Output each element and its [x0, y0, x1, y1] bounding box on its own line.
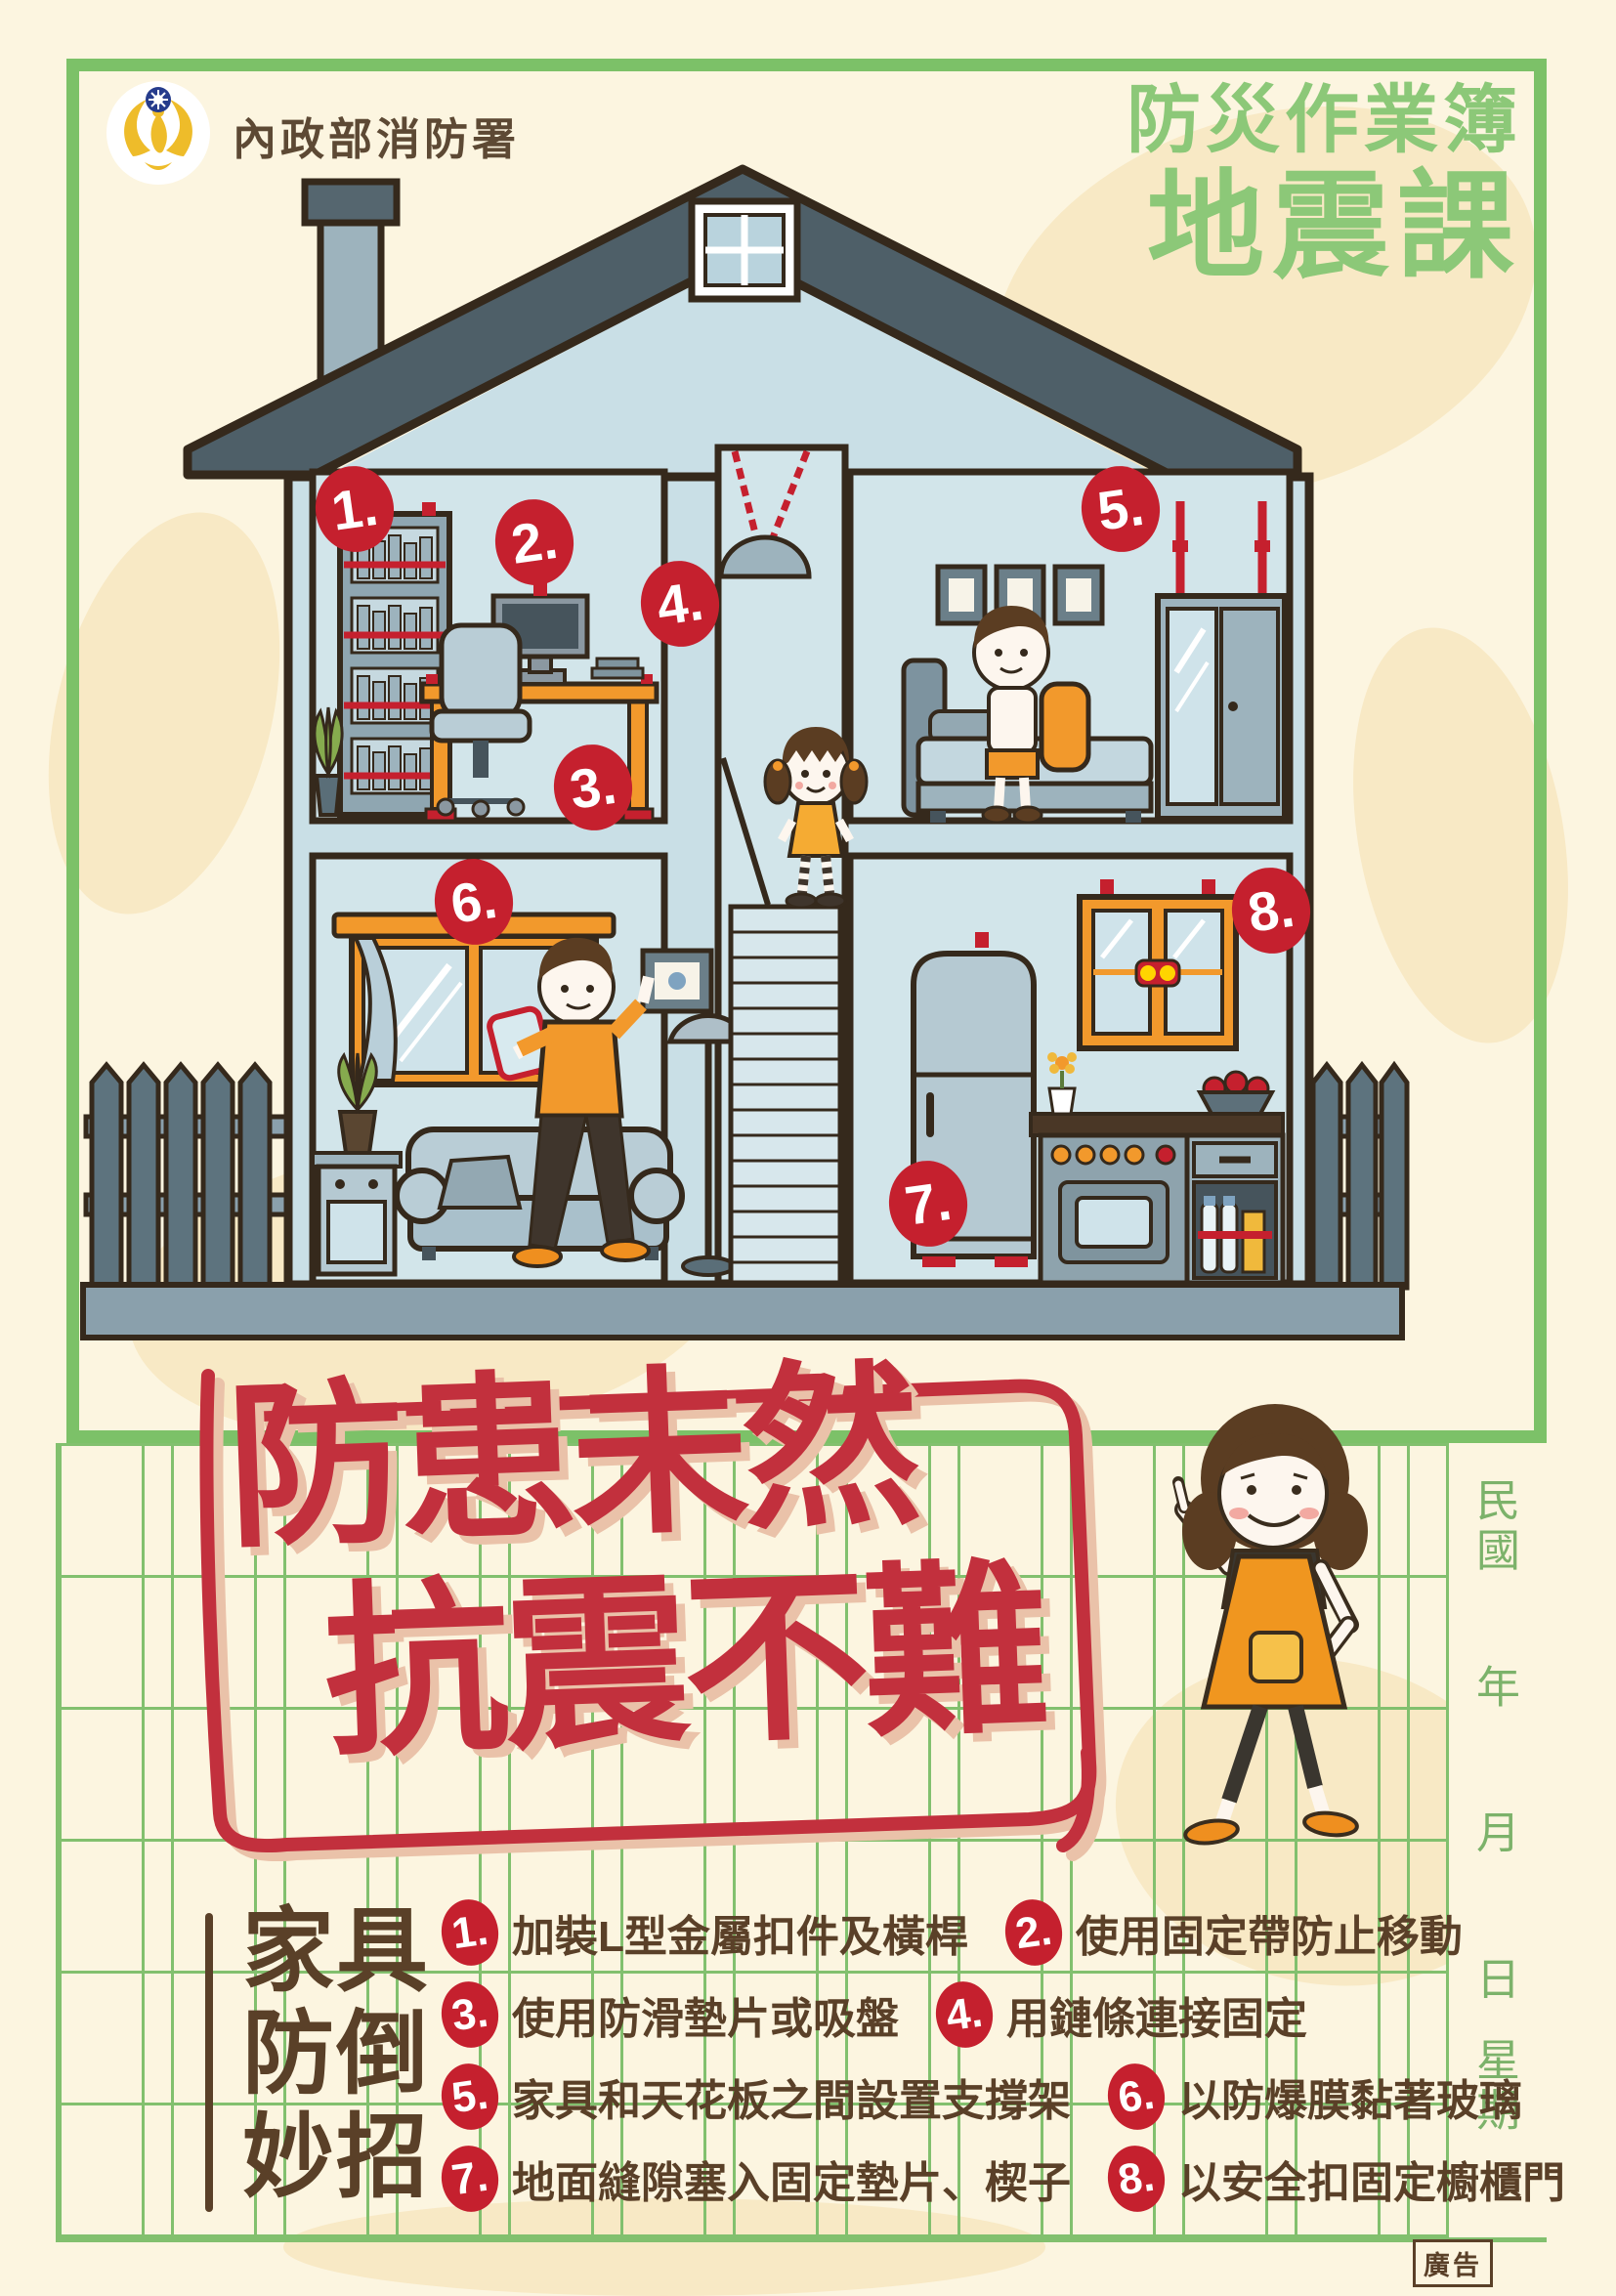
attic-window — [692, 201, 797, 299]
tip-row: 3. 使用防滑墊片或吸盤 4. 用鏈條連接固定 — [442, 1981, 1565, 2048]
tip-number-badge: 8. — [1104, 2142, 1169, 2215]
tip-item-8: 8. 以安全扣固定櫥櫃門 — [1108, 2146, 1565, 2212]
woman-character — [1114, 1392, 1378, 1847]
tip-text: 使用固定帶防止移動 — [1076, 1901, 1463, 1964]
tip-number-badge: 2. — [1000, 1895, 1066, 1969]
svg-text:6.: 6. — [447, 868, 500, 935]
tip-number-badge: 4. — [932, 1977, 998, 2051]
tip-item-5: 5. 家具和天花板之間設置支撐架 — [442, 2063, 1071, 2130]
tip-text: 使用防滑墊片或吸盤 — [512, 1983, 899, 2046]
svg-text:2.: 2. — [507, 508, 561, 575]
tip-row: 7. 地面縫隙塞入固定墊片、楔子 8. 以安全扣固定櫥櫃門 — [442, 2146, 1565, 2212]
tip-text: 以防爆膜黏著玻璃 — [1178, 2065, 1522, 2128]
tips-heading-line: 家具 — [242, 1899, 430, 2002]
tip-text: 加裝L型金屬扣件及橫桿 — [512, 1901, 968, 1964]
tips-heading-line: 妙招 — [242, 2105, 430, 2208]
tips-heading-line: 防倒 — [242, 2002, 430, 2105]
wall-cabinet — [1080, 879, 1236, 1048]
date-era: 民國 — [1477, 1477, 1526, 1577]
course-title: 地震課 — [1127, 168, 1522, 285]
slogan: 防患未然 抗震不難 — [224, 1352, 1045, 1771]
slogan-line-2: 抗震不難 — [321, 1557, 1046, 1768]
tip-item-2: 2. 使用固定帶防止移動 — [1005, 1899, 1463, 1966]
desk-books — [592, 659, 643, 678]
svg-text:7.: 7. — [901, 1169, 955, 1237]
slogan-line-1: 防患未然 — [224, 1352, 1039, 1558]
tip-row: 5. 家具和天花板之間設置支撐架 6. 以防爆膜黏著玻璃 — [442, 2063, 1565, 2130]
tips-heading: 家具 防倒 妙招 — [242, 1899, 430, 2208]
ad-label: 廣告 — [1413, 2239, 1493, 2287]
house-illustration: 1. 2. 3. 4. 5. 6. 7. 8. — [78, 125, 1412, 1346]
tip-item-6: 6. 以防爆膜黏著玻璃 — [1108, 2063, 1522, 2130]
poster-title-block: 防災作業簿 地震課 — [1127, 82, 1522, 285]
fruit-bowl — [1200, 1072, 1272, 1114]
tip-item-7: 7. 地面縫隙塞入固定墊片、楔子 — [442, 2146, 1071, 2212]
tip-number-badge: 5. — [438, 2060, 503, 2133]
tip-item-3: 3. 使用防滑墊片或吸盤 — [442, 1981, 899, 2048]
fire-agency-logo — [104, 76, 213, 186]
agency-name: 內政部消防署 — [233, 104, 520, 167]
series-title: 防災作業簿 — [1127, 82, 1522, 160]
tip-text: 家具和天花板之間設置支撐架 — [512, 2065, 1071, 2128]
date-year: 年 — [1477, 1664, 1526, 1714]
date-month: 月 — [1477, 1809, 1526, 1859]
tip-text: 以安全扣固定櫥櫃門 — [1178, 2147, 1565, 2210]
tip-number-badge: 7. — [438, 2142, 503, 2215]
ground-platform — [83, 1285, 1402, 1338]
tip-number-badge: 1. — [438, 1895, 503, 1969]
tip-row: 1. 加裝L型金屬扣件及橫桿 2. 使用固定帶防止移動 — [442, 1899, 1565, 1966]
tip-number-badge: 6. — [1104, 2060, 1169, 2133]
svg-text:1.: 1. — [327, 475, 381, 542]
svg-text:5.: 5. — [1093, 475, 1147, 542]
tip-text: 用鏈條連接固定 — [1006, 1983, 1307, 2046]
tip-item-1: 1. 加裝L型金屬扣件及橫桿 — [442, 1899, 968, 1966]
tips-list: 1. 加裝L型金屬扣件及橫桿 2. 使用固定帶防止移動 3. 使用防滑墊片或吸盤… — [442, 1899, 1565, 2212]
svg-text:3.: 3. — [566, 753, 619, 821]
kitchen-counter — [1031, 1114, 1283, 1283]
tip-number-badge: 3. — [438, 1977, 503, 2051]
tips-heading-bar — [205, 1913, 213, 2212]
tip-item-4: 4. 用鏈條連接固定 — [936, 1981, 1307, 2048]
svg-text:8.: 8. — [1244, 876, 1297, 944]
tip-text: 地面縫隙塞入固定墊片、楔子 — [512, 2147, 1071, 2210]
svg-text:4.: 4. — [653, 570, 706, 637]
